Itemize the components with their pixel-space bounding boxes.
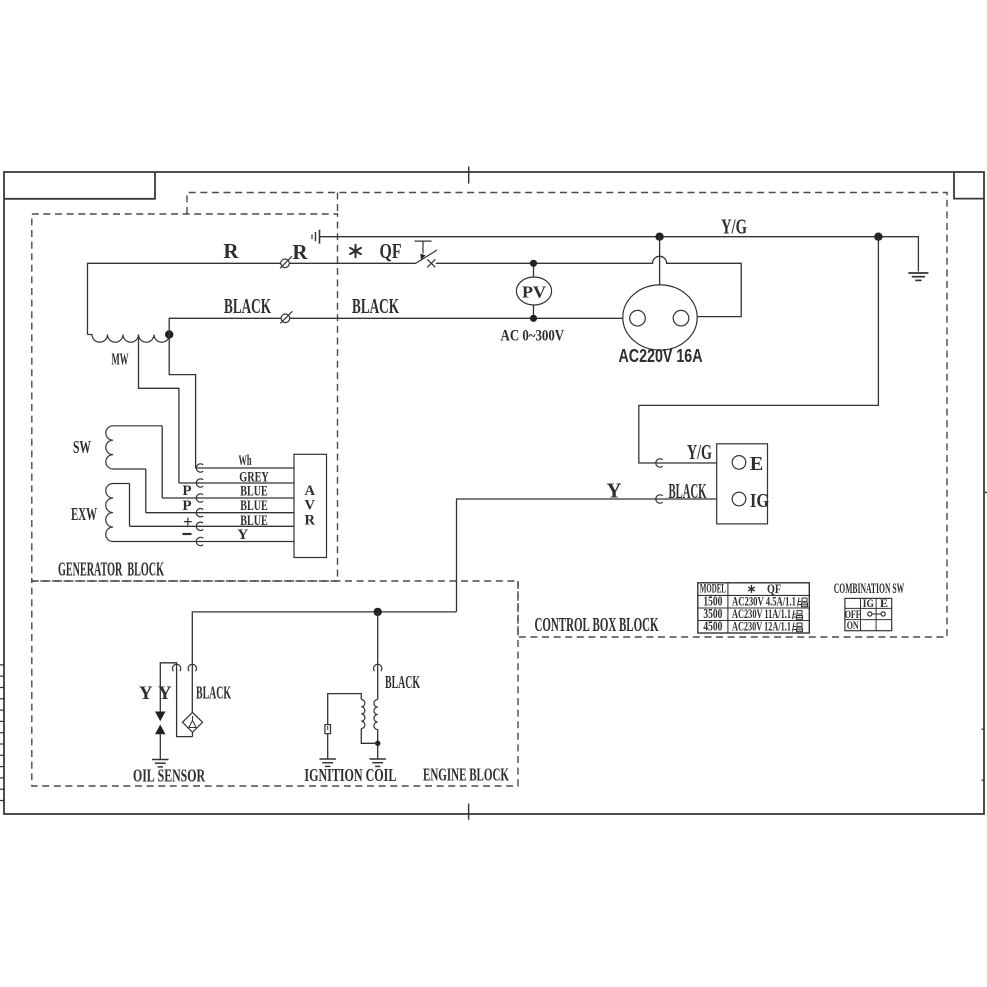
svg-text:EXW: EXW: [71, 504, 97, 524]
svg-text:BLACK: BLACK: [352, 294, 399, 318]
svg-text:PV: PV: [522, 283, 547, 302]
svg-text:BLACK: BLACK: [196, 683, 231, 703]
svg-text:AC220V 16A: AC220V 16A: [619, 345, 703, 366]
svg-text:BLACK: BLACK: [224, 294, 271, 318]
svg-text:SW: SW: [73, 437, 91, 457]
svg-text:R: R: [223, 239, 239, 263]
svg-text:BLUE: BLUE: [240, 498, 268, 514]
svg-text:QF: QF: [380, 239, 402, 263]
svg-text:E: E: [880, 596, 888, 610]
svg-text:P: P: [182, 483, 191, 499]
svg-text:E: E: [750, 453, 763, 475]
svg-text:BLACK: BLACK: [385, 672, 420, 692]
svg-text:IGNITION COIL: IGNITION COIL: [304, 765, 396, 785]
svg-text:COMBINATION SW: COMBINATION SW: [834, 581, 905, 597]
svg-text:IG: IG: [863, 596, 874, 610]
svg-text:Y/G: Y/G: [721, 215, 747, 239]
svg-text:Wh: Wh: [239, 453, 252, 469]
svg-text:+: +: [183, 512, 193, 531]
svg-text:4500: 4500: [703, 619, 722, 634]
svg-text:OIL SENSOR: OIL SENSOR: [133, 766, 205, 786]
svg-text:Y: Y: [158, 683, 172, 704]
svg-text:R: R: [292, 240, 308, 264]
svg-text:AC 0~300V: AC 0~300V: [501, 328, 565, 345]
svg-text:BLACK: BLACK: [669, 479, 707, 503]
svg-text:GENERATOR BLOCK: GENERATOR BLOCK: [58, 560, 164, 581]
svg-text:ENGINE BLOCK: ENGINE BLOCK: [423, 765, 509, 785]
svg-text:AC230V 12A/1.1: AC230V 12A/1.1: [732, 619, 791, 634]
svg-text:Y: Y: [237, 527, 248, 543]
svg-text:CONTROL BOX BLOCK: CONTROL BOX BLOCK: [535, 614, 659, 636]
svg-text:V: V: [305, 498, 316, 514]
svg-text:Y: Y: [139, 683, 153, 704]
svg-text:Y: Y: [606, 479, 621, 503]
svg-text:Y/G: Y/G: [687, 440, 712, 464]
svg-text:ON: ON: [847, 618, 859, 632]
svg-text:MW: MW: [112, 350, 129, 369]
svg-text:R: R: [305, 513, 316, 529]
svg-text:IG: IG: [750, 490, 769, 512]
